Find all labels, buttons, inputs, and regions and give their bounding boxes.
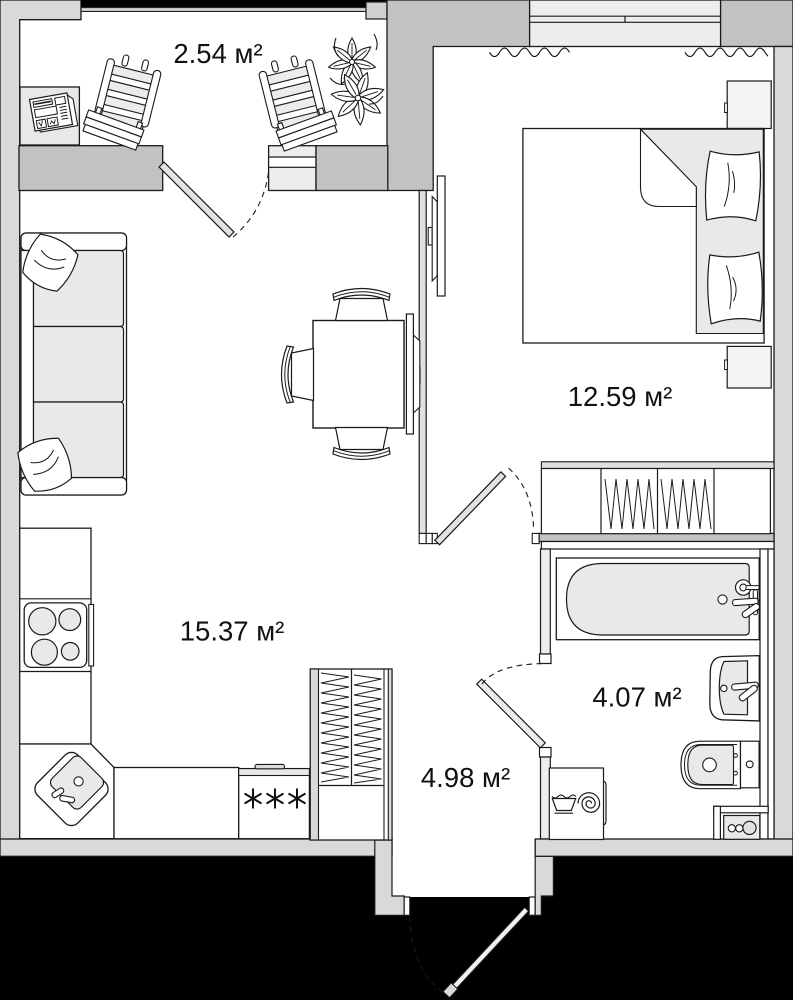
svg-text:4.98 м²: 4.98 м² bbox=[421, 762, 510, 793]
svg-text:4.07 м²: 4.07 м² bbox=[592, 682, 681, 713]
svg-text:12.59 м²: 12.59 м² bbox=[568, 381, 673, 412]
svg-text:2.54 м²: 2.54 м² bbox=[173, 38, 262, 69]
svg-text:15.37 м²: 15.37 м² bbox=[180, 616, 285, 647]
